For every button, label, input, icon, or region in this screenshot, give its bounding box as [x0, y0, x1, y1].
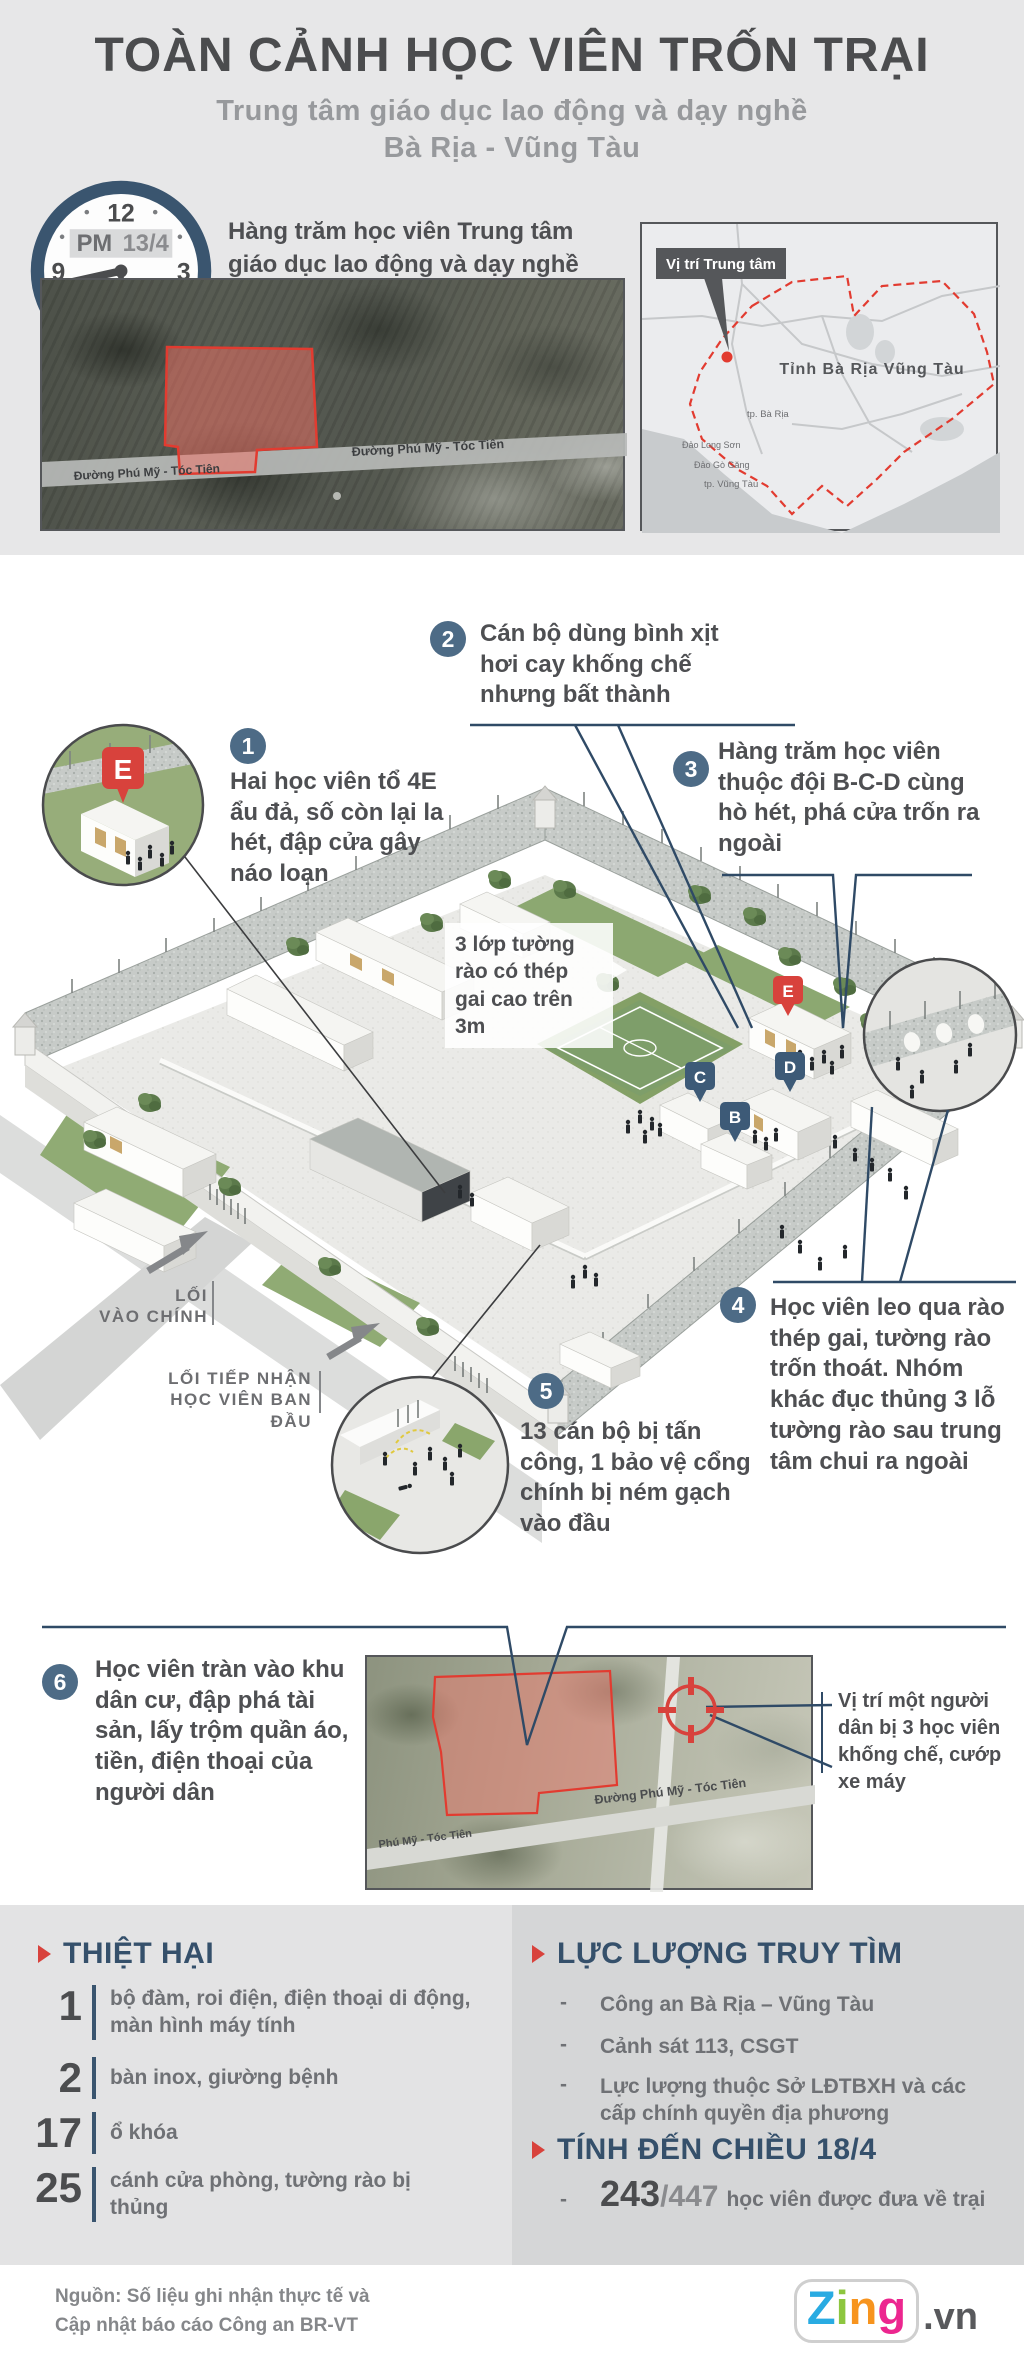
marker-d: D — [784, 1058, 796, 1077]
asof-title: TÍNH ĐẾN CHIỀU 18/4 — [557, 2133, 877, 2167]
road-band — [367, 1785, 815, 1870]
search-title: LỰC LƯỢNG TRUY TÌM — [557, 1937, 902, 1971]
damage-row: 2 bàn inox, giường bệnh — [30, 2057, 471, 2099]
page-subtitle-line2: Bà Rịa - Vũng Tàu — [0, 132, 1024, 165]
step-4-badge: 4 — [720, 1287, 756, 1323]
bullet-dash: - — [560, 2188, 600, 2212]
bullet-dash: - — [560, 2073, 600, 2128]
island-long-son: Đảo Long Sơn — [682, 440, 740, 450]
logo-suffix: .vn — [923, 2296, 978, 2343]
clock-12: 12 — [107, 201, 134, 228]
entrance-intake-line2: HỌC VIÊN BAN ĐẦU — [170, 1390, 312, 1430]
stats-section: THIỆT HẠI 1 bộ đàm, roi điện, điện thoại… — [0, 1905, 1024, 2265]
step-3-text: Hàng trăm học viên thuộc đội B-C-D cùng … — [718, 737, 996, 860]
inset-marker-e: E — [114, 754, 133, 785]
step-5-badge: 5 — [528, 1373, 564, 1409]
step-2-badge: 2 — [430, 621, 466, 657]
inset-wall-holes — [864, 959, 1024, 1119]
red-triangle-icon — [38, 1945, 51, 1963]
garage-canopy — [310, 1118, 470, 1222]
footer-section: Nguồn: Số liệu ghi nhận thực tế và Cập n… — [0, 2265, 1024, 2368]
step-5-text: 13 cán bộ bị tấn công, 1 bảo vệ cổng chí… — [520, 1417, 752, 1540]
entrance-main-line1: LỐI — [175, 1286, 208, 1305]
bullet-dash: - — [560, 1991, 600, 2018]
clock-date: 13/4 — [123, 230, 170, 257]
building-markers: E D C B — [685, 976, 805, 1142]
building-center — [471, 1177, 569, 1251]
damage-desc: cánh cửa phòng, tường rào bị thủng — [96, 2167, 471, 2222]
city-vung-tau: tp. Vũng Tàu — [704, 479, 758, 490]
step-1-text: Hai học viên tổ 4E ẩu đả, số còn lại la … — [230, 767, 458, 890]
damage-count: 25 — [30, 2167, 92, 2222]
asof-desc: học viên được đưa về trại — [726, 2188, 985, 2212]
logo-letter: i — [836, 2281, 849, 2334]
marker-b: B — [729, 1108, 741, 1127]
search-item: - Cảnh sát 113, CSGT — [560, 2033, 1000, 2060]
search-item-text: Lực lượng thuộc Sở LĐTBXH và các cấp chí… — [600, 2073, 1000, 2128]
page-subtitle-line1: Trung tâm giáo dục lao động và dạy nghề — [0, 95, 1024, 128]
logo-letter: Z — [807, 2281, 836, 2334]
building-e — [749, 1001, 851, 1079]
entrance-main-line2: VÀO CHÍNH — [99, 1307, 208, 1326]
asof-header: TÍNH ĐẾN CHIỀU 18/4 — [532, 2133, 877, 2167]
search-column: LỰC LƯỢNG TRUY TÌM - Công an Bà Rịa – Vũ… — [512, 1905, 1024, 2265]
island-go-gang: Đảo Gò Găng — [694, 460, 750, 470]
entrance-main-label: LỐI VÀO CHÍNH — [60, 1285, 208, 1328]
callout-pointer — [704, 278, 729, 351]
province-name: Tỉnh Bà Rịa Vũng Tàu — [779, 361, 964, 378]
building-right-long — [851, 1090, 958, 1166]
vertical-road — [650, 1657, 680, 1892]
damage-desc: ổ khóa — [96, 2119, 471, 2146]
diagram-section: Phú Mỹ - Tóc Tiên Đường Phú Mỹ - Tóc Tiê… — [0, 555, 1024, 1905]
marker-c: C — [694, 1068, 706, 1087]
damage-column: THIỆT HẠI 1 bộ đàm, roi điện, điện thoại… — [0, 1905, 512, 2265]
building-small-bottom — [560, 1332, 640, 1388]
step-6-text: Học viên tràn vào khu dân cư, đập phá tà… — [95, 1655, 353, 1809]
center-location-dot — [722, 352, 733, 363]
logo-letter: g — [877, 2281, 906, 2334]
exterior-roads — [0, 1115, 542, 1543]
step-2-text: Cán bộ dùng bình xịt hơi cay khống chế n… — [480, 619, 752, 711]
damage-row: 17 ổ khóa — [30, 2112, 471, 2154]
motorbike-robbery-annotation: Vị trí một người dân bị 3 học viên khống… — [838, 1688, 1006, 1796]
infographic-page: TOÀN CẢNH HỌC VIÊN TRỐN TRẠI Trung tâm g… — [0, 0, 1024, 2368]
damage-row: 1 bộ đàm, roi điện, điện thoại di động, … — [30, 1985, 471, 2040]
red-triangle-icon — [532, 1945, 545, 1963]
zing-logo-bubble: Zing — [794, 2279, 919, 2343]
page-title: TOÀN CẢNH HỌC VIÊN TRỐN TRẠI — [0, 28, 1024, 83]
red-triangle-icon — [532, 2141, 545, 2159]
damage-count: 1 — [30, 1985, 92, 2040]
search-header: LỰC LƯỢNG TRUY TÌM — [532, 1937, 902, 1971]
clock-period: PM — [77, 230, 113, 257]
people-figures — [458, 1045, 908, 1289]
gates — [210, 1184, 487, 1393]
source-note: Nguồn: Số liệu ghi nhận thực tế và Cập n… — [55, 2283, 370, 2340]
entrance-intake-line1: LỐI TIẾP NHẬN — [168, 1369, 312, 1388]
step-4-text: Học viên leo qua rào thép gai, tường rào… — [770, 1293, 1008, 1477]
internal-walls — [160, 1060, 908, 1259]
zing-logo: Zing .vn — [794, 2279, 978, 2343]
inset-building-e: E — [43, 725, 203, 885]
building-left-2 — [74, 1189, 196, 1272]
damage-header: THIỆT HẠI — [38, 1937, 214, 1971]
step-6-badge: 6 — [42, 1664, 78, 1700]
inset-gate-fight — [330, 1377, 508, 1553]
logo-letter: n — [849, 2281, 878, 2334]
search-item: - Lực lượng thuộc Sở LĐTBXH và các cấp c… — [560, 2073, 1000, 2128]
satellite-map-escape: Phú Mỹ - Tóc Tiên Đường Phú Mỹ - Tóc Tiê… — [365, 1655, 813, 1890]
fence-posts — [72, 792, 973, 1346]
search-item-text: Công an Bà Rịa – Vũng Tàu — [600, 1991, 1000, 2018]
asof-stat: - 243 /447 học viên được đưa về trại — [560, 2173, 985, 2215]
connector-lines — [42, 725, 1016, 1773]
total-count: /447 — [660, 2180, 718, 2214]
damage-count: 2 — [30, 2057, 92, 2099]
header-section: TOÀN CẢNH HỌC VIÊN TRỐN TRẠI Trung tâm g… — [0, 0, 1024, 555]
wall-note: 3 lớp tường rào có thép gai cao trên 3m — [445, 923, 613, 1048]
returned-count: 243 — [600, 2173, 660, 2215]
damage-count: 17 — [30, 2112, 92, 2154]
step-3-badge: 3 — [673, 751, 709, 787]
province-map: Vị trí Trung tâm Tỉnh Bà Rịa Vũng Tàu tp… — [640, 222, 998, 531]
satellite-map-center: Đường Phú Mỹ - Tóc Tiên Đường Phú Mỹ - T… — [40, 278, 625, 531]
entrance-intake-label: LỐI TIẾP NHẬN HỌC VIÊN BAN ĐẦU — [130, 1368, 312, 1432]
search-item: - Công an Bà Rịa – Vũng Tàu — [560, 1991, 1000, 2018]
building-row-upper-2 — [227, 975, 373, 1071]
building-d — [739, 1089, 831, 1160]
province-callout-label: Vị trí Trung tâm — [666, 256, 776, 273]
center-area-highlight — [433, 1671, 617, 1815]
marker-e: E — [782, 982, 793, 1001]
damage-title: THIỆT HẠI — [63, 1937, 214, 1971]
bullet-dash: - — [560, 2033, 600, 2060]
step-1-badge: 1 — [230, 728, 266, 764]
building-left-1 — [84, 1107, 216, 1197]
source-line2: Cập nhật báo cáo Công an BR-VT — [55, 2315, 358, 2336]
sea-east — [842, 452, 1000, 533]
source-line1: Nguồn: Số liệu ghi nhận thực tế và — [55, 2286, 370, 2307]
damage-desc: bộ đàm, roi điện, điện thoại di động, mà… — [96, 1985, 471, 2040]
building-b — [701, 1133, 772, 1189]
damage-row: 25 cánh cửa phòng, tường rào bị thủng — [30, 2167, 471, 2222]
building-c — [660, 1093, 736, 1155]
city-ba-ria: tp. Bà Rịa — [747, 409, 789, 420]
search-item-text: Cảnh sát 113, CSGT — [600, 2033, 1000, 2060]
damage-desc: bàn inox, giường bệnh — [96, 2064, 471, 2091]
